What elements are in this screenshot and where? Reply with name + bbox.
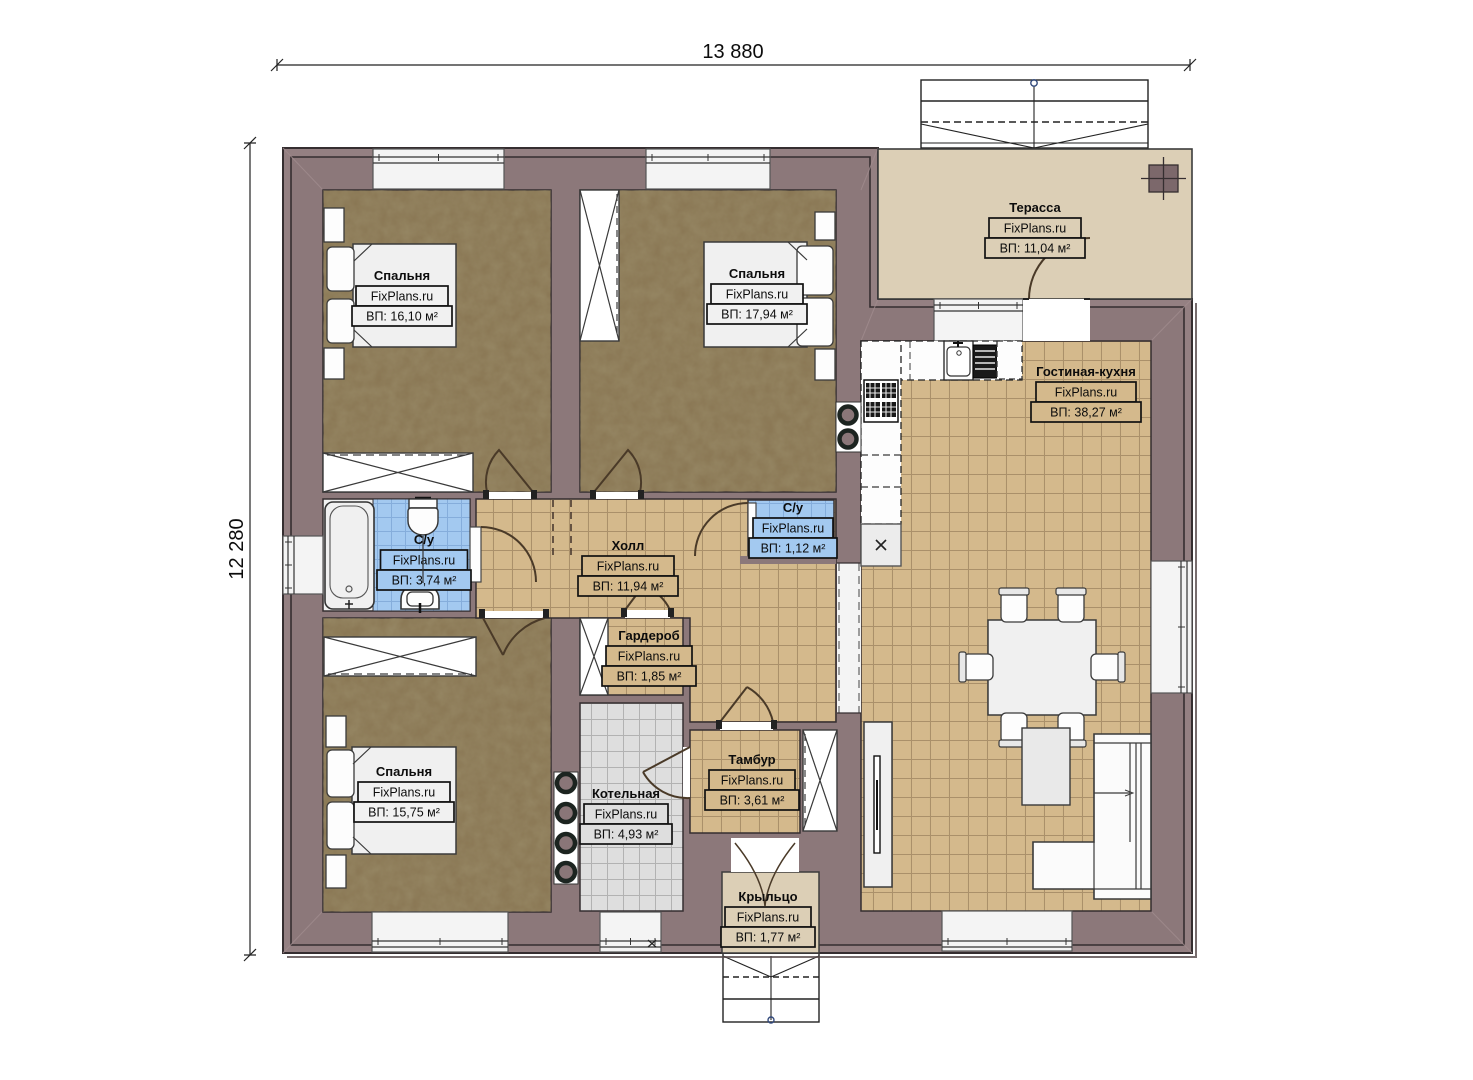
svg-text:FixPlans.ru: FixPlans.ru xyxy=(1004,222,1067,236)
svg-text:Спальня: Спальня xyxy=(729,266,785,281)
svg-text:Спальня: Спальня xyxy=(374,268,430,283)
svg-text:FixPlans.ru: FixPlans.ru xyxy=(618,650,681,664)
svg-text:ВП: 15,75 м²: ВП: 15,75 м² xyxy=(368,806,440,820)
svg-text:FixPlans.ru: FixPlans.ru xyxy=(373,786,436,800)
svg-text:ВП: 3,61 м²: ВП: 3,61 м² xyxy=(720,794,785,808)
svg-text:С/у: С/у xyxy=(414,532,435,547)
svg-text:ВП: 1,85 м²: ВП: 1,85 м² xyxy=(617,670,682,684)
svg-text:Терасса: Терасса xyxy=(1009,200,1061,215)
svg-text:ВП: 38,27 м²: ВП: 38,27 м² xyxy=(1050,406,1122,420)
svg-text:ВП: 11,94 м²: ВП: 11,94 м² xyxy=(593,580,664,594)
svg-text:FixPlans.ru: FixPlans.ru xyxy=(726,288,789,302)
svg-text:ВП: 11,04 м²: ВП: 11,04 м² xyxy=(1000,242,1071,256)
svg-text:FixPlans.ru: FixPlans.ru xyxy=(1055,386,1118,400)
svg-text:Холл: Холл xyxy=(612,538,645,553)
svg-text:FixPlans.ru: FixPlans.ru xyxy=(737,911,800,925)
svg-text:ВП: 4,93 м²: ВП: 4,93 м² xyxy=(594,828,659,842)
svg-text:Спальня: Спальня xyxy=(376,764,432,779)
svg-text:FixPlans.ru: FixPlans.ru xyxy=(595,808,658,822)
svg-text:Гостиная-кухня: Гостиная-кухня xyxy=(1036,364,1136,379)
svg-text:ВП: 1,77 м²: ВП: 1,77 м² xyxy=(736,931,801,945)
svg-text:ВП: 3,74 м²: ВП: 3,74 м² xyxy=(392,574,457,588)
svg-text:12 280: 12 280 xyxy=(226,518,248,579)
svg-text:Тамбур: Тамбур xyxy=(728,752,775,767)
svg-text:ВП: 16,10 м²: ВП: 16,10 м² xyxy=(366,310,438,324)
svg-text:ВП: 17,94 м²: ВП: 17,94 м² xyxy=(721,308,793,322)
svg-text:С/у: С/у xyxy=(783,500,804,515)
svg-text:13 880: 13 880 xyxy=(702,41,763,63)
svg-text:FixPlans.ru: FixPlans.ru xyxy=(721,774,784,788)
svg-text:Крыльцо: Крыльцо xyxy=(738,889,797,904)
svg-text:ВП: 1,12 м²: ВП: 1,12 м² xyxy=(761,542,826,556)
svg-text:FixPlans.ru: FixPlans.ru xyxy=(762,522,825,536)
svg-text:Котельная: Котельная xyxy=(592,786,660,801)
svg-text:FixPlans.ru: FixPlans.ru xyxy=(371,290,434,304)
svg-text:Гардероб: Гардероб xyxy=(618,628,679,643)
svg-text:FixPlans.ru: FixPlans.ru xyxy=(393,554,456,568)
svg-text:FixPlans.ru: FixPlans.ru xyxy=(597,560,660,574)
